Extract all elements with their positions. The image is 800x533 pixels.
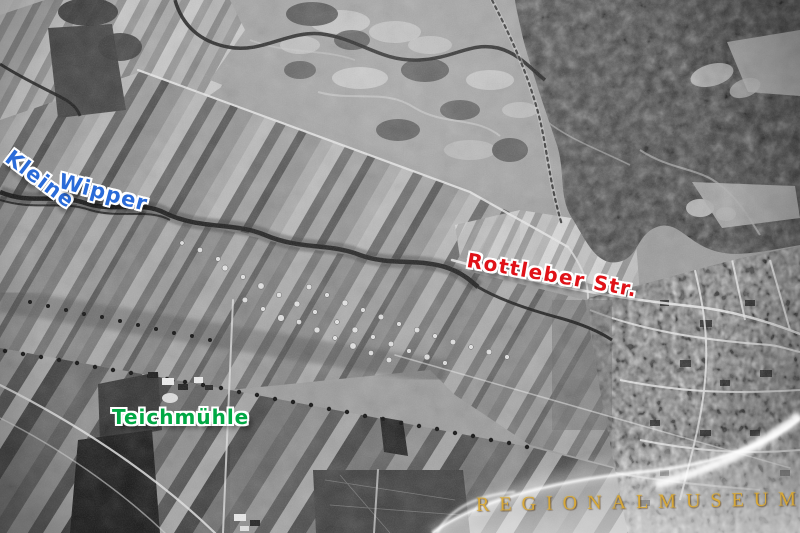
label-teichmuehle: Teichmühle (112, 407, 249, 427)
aerial-photo-stage: Kleine Wipper Rottleber Str. Teichmühle … (0, 0, 800, 533)
aerial-photograph (0, 0, 800, 533)
